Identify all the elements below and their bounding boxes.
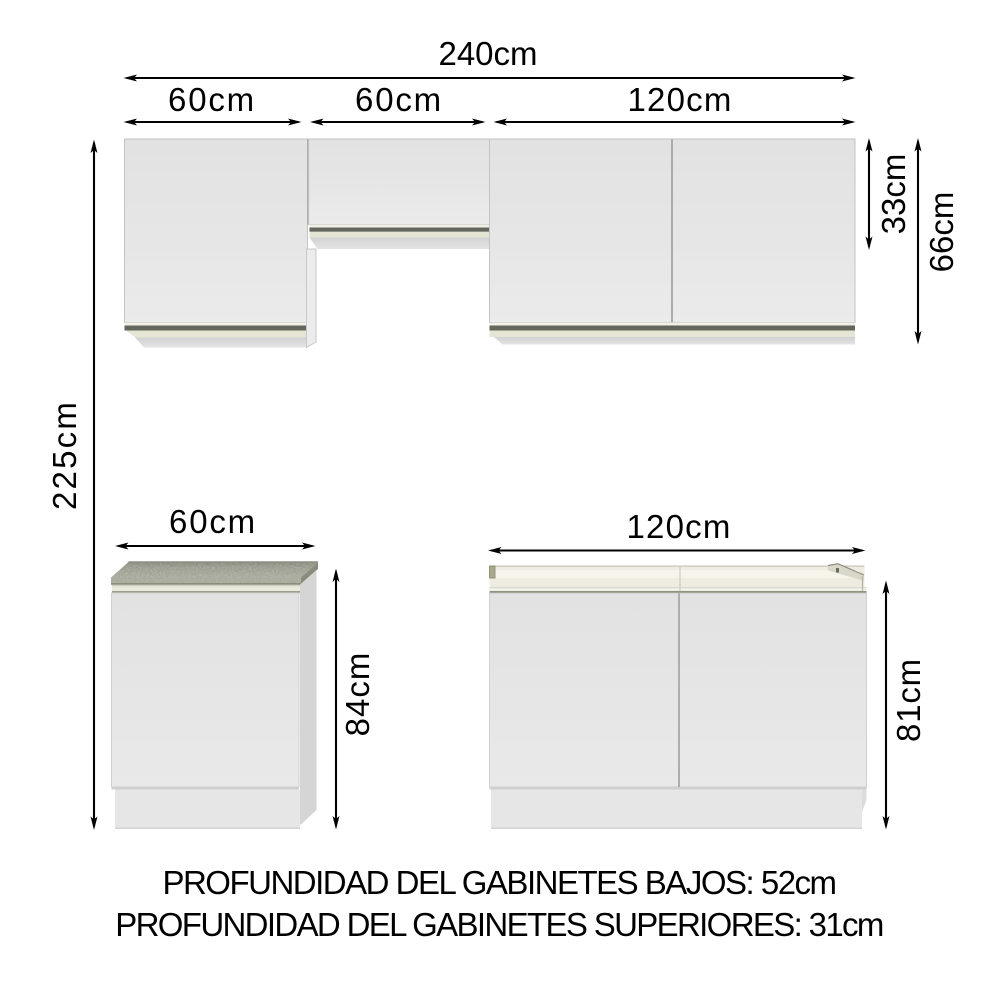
svg-text:81cm: 81cm (890, 658, 927, 742)
svg-text:60cm: 60cm (355, 81, 443, 118)
svg-text:84cm: 84cm (339, 652, 376, 737)
svg-text:PROFUNDIDAD DEL GABINETES SUPE: PROFUNDIDAD DEL GABINETES SUPERIORES: 31… (115, 906, 883, 943)
svg-text:240cm: 240cm (438, 35, 537, 72)
svg-text:120cm: 120cm (626, 508, 731, 545)
svg-text:33cm: 33cm (875, 154, 912, 235)
svg-text:PROFUNDIDAD DEL GABINETES BAJO: PROFUNDIDAD DEL GABINETES BAJOS: 52cm (162, 864, 835, 901)
svg-text:60cm: 60cm (168, 81, 256, 118)
svg-text:120cm: 120cm (627, 81, 732, 118)
svg-text:225cm: 225cm (46, 400, 83, 510)
svg-text:60cm: 60cm (169, 503, 257, 540)
svg-text:66cm: 66cm (923, 192, 960, 273)
